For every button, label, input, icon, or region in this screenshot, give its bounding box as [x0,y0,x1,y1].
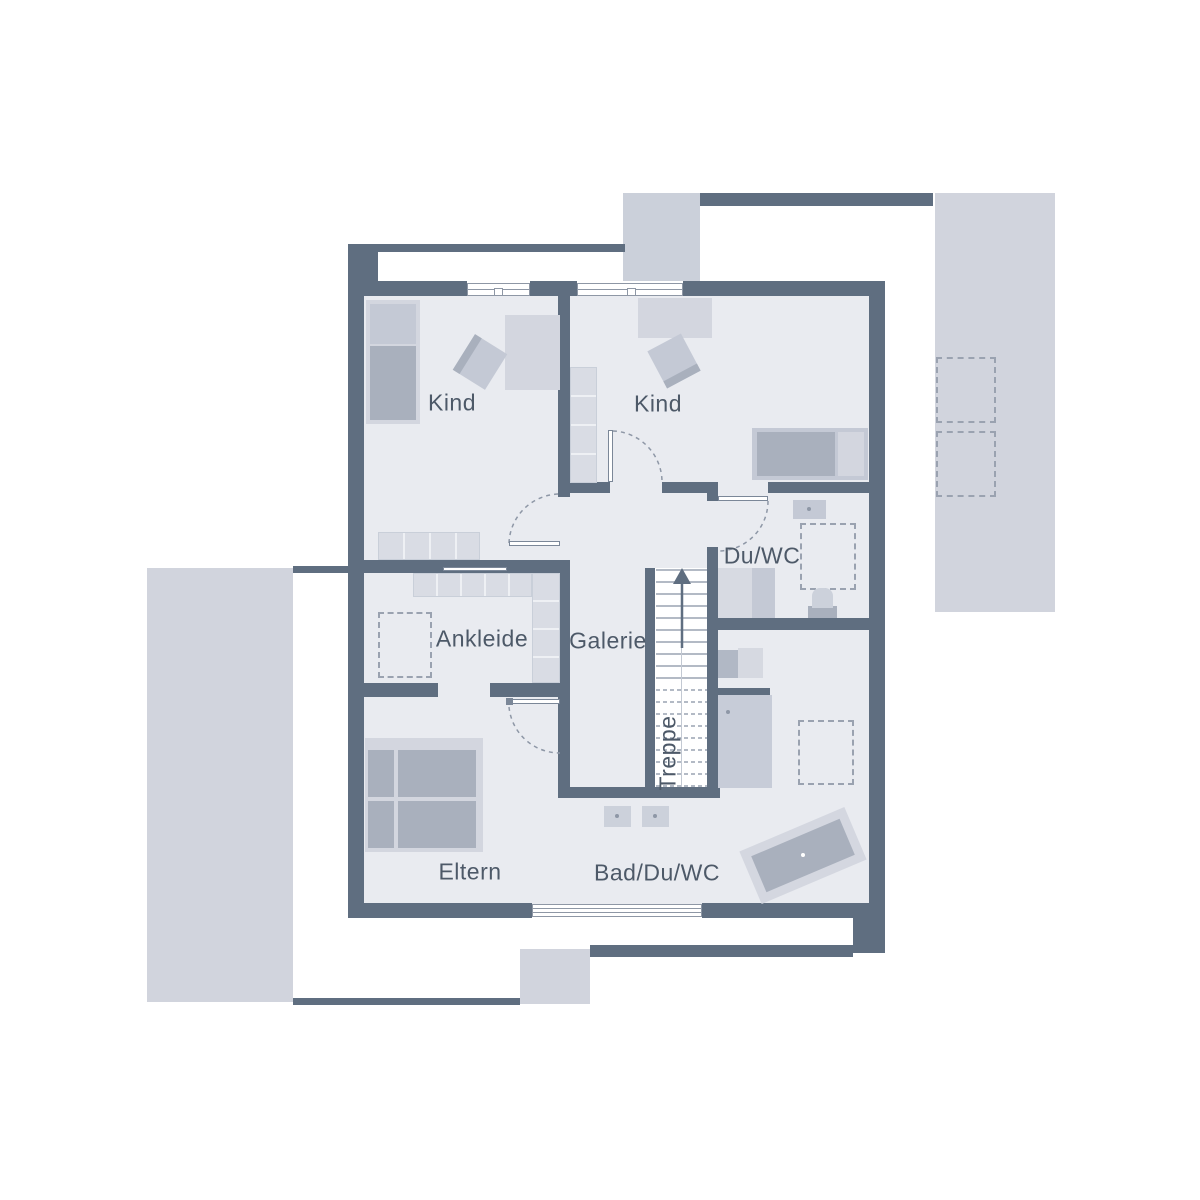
washbasin-bad-1-dot [615,814,619,818]
vanity-bad-basin [738,648,763,678]
dashed-outline-bad [798,720,854,785]
wardrobe-ankleide-column [532,573,560,683]
room-label-bad: Bad/Du/WC [594,860,720,887]
vanity-bad-cabinet [718,650,738,678]
floor-plan: Kind Kind Du/WC Ankleide Galerie Treppe … [0,0,1200,1200]
bed-eltern-mattress-1 [398,750,476,797]
room-label-ankleide: Ankleide [436,626,528,653]
plan-linework [0,0,1200,1200]
door-hinge-eltern [506,698,513,705]
dashed-outline-terrace-1 [936,357,996,423]
room-label-duwc: Du/WC [724,543,801,570]
room-label-kind1: Kind [428,390,476,417]
shower-bad-dot [726,710,730,714]
door-leaf-duwc [718,496,768,501]
dashed-outline-ankleide [378,612,432,678]
wardrobe-ankleide-row [413,573,532,597]
door-arc-kind1 [509,494,560,543]
desk-kind2 [638,298,712,338]
bed-eltern-pillow-2 [368,801,394,848]
bed-kind2-pillow [838,432,864,476]
bed-eltern-pillow-1 [368,750,394,797]
dashed-outline-duwc [800,523,856,590]
door-arc-kind2 [613,431,662,482]
room-label-eltern: Eltern [438,859,501,886]
door-leaf-eltern [508,699,560,704]
bed-eltern-mattress-2 [398,801,476,848]
room-label-kind2: Kind [634,391,682,418]
door-leaf-kind2 [608,430,613,482]
room-label-treppe: Treppe [655,715,682,790]
shower-bad [718,695,772,788]
shower-duwc-tray [752,568,775,618]
dashed-outline-terrace-2 [936,431,996,497]
washbasin-duwc-dot [807,507,811,511]
door-arc-eltern [509,707,560,753]
bed-kind1-pillow [370,304,416,344]
toilet-duwc-bowl [812,588,833,608]
bed-kind1-mattress [370,346,416,420]
room-label-galerie: Galerie [569,628,647,655]
wardrobe-kind1 [378,532,480,560]
bed-kind2-mattress [757,432,835,476]
door-leaf-kind1 [509,541,560,546]
shelf-kind2 [570,367,597,483]
washbasin-bad-2-dot [653,814,657,818]
desk-kind1 [505,315,560,390]
bathtub-drain [801,853,805,857]
